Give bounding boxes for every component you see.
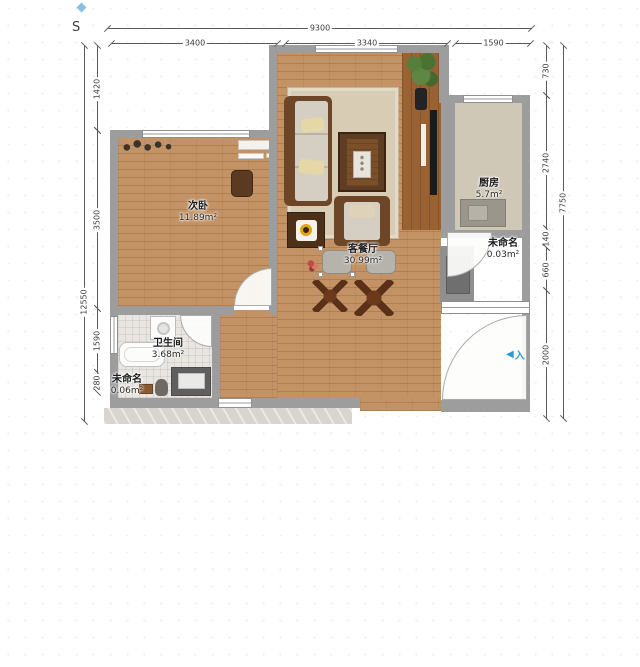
dim-top-seg-2: 3340: [286, 43, 448, 44]
desk-chair[interactable]: [231, 170, 253, 197]
tv-shelf[interactable]: [421, 124, 426, 166]
dim-left-seg-2: 3500: [97, 131, 98, 309]
sofa-cushions: [295, 101, 328, 201]
tv[interactable]: [430, 110, 437, 195]
wall: [441, 400, 530, 412]
floorplan-canvas[interactable]: S: [0, 0, 640, 667]
wall: [441, 103, 455, 238]
side-table[interactable]: [287, 212, 325, 248]
room-name: 未命名: [92, 374, 162, 386]
room-label-living: 客餐厅 30.99m²: [328, 244, 398, 267]
sofa[interactable]: [284, 96, 332, 206]
compass-south-label[interactable]: S: [72, 20, 80, 35]
window-bathroom[interactable]: [110, 316, 118, 354]
wall: [272, 306, 277, 315]
room-area: 0.06m²: [92, 386, 162, 397]
selection-handle[interactable]: [318, 272, 323, 277]
sofa-pillow: [298, 159, 324, 176]
room-name: 客餐厅: [328, 244, 398, 256]
balcony-floor[interactable]: [104, 408, 352, 424]
coffee-table[interactable]: [338, 132, 386, 192]
armchair[interactable]: [334, 196, 390, 246]
room-name: 厨房: [454, 178, 524, 190]
room-area: 5.7m²: [454, 190, 524, 201]
vanity-basin: [178, 373, 205, 389]
room-name: 未命名: [472, 238, 534, 250]
potted-plant[interactable]: [404, 53, 438, 89]
speaker[interactable]: [415, 88, 427, 110]
dim-right-seg-1: 730: [546, 46, 547, 96]
armchair-pillow: [349, 205, 375, 218]
coffee-table-tray: [353, 151, 371, 178]
entrance-arrow-icon: ◀: [506, 349, 514, 360]
room-label-flue: 未命名 0.03m²: [472, 238, 534, 261]
dining-chair-wood[interactable]: [312, 280, 348, 312]
wall: [522, 95, 530, 238]
keyboard[interactable]: [238, 153, 264, 159]
window-balcony[interactable]: [218, 398, 252, 408]
room-area: 11.89m²: [163, 213, 233, 224]
ring-lamp: [300, 224, 312, 236]
window-entry-bay[interactable]: [441, 301, 530, 314]
dim-right-seg-5: 2000: [546, 291, 547, 419]
room-area: 30.99m²: [328, 256, 398, 267]
dim-right-seg-4: 660: [546, 248, 547, 291]
room-label-niche: 未命名 0.06m²: [92, 374, 162, 397]
flower-decoration[interactable]: [307, 259, 318, 272]
dim-left-total: 12550: [84, 46, 85, 422]
dim-top-seg-1: 3400: [112, 43, 278, 44]
compass-needle-icon: [77, 3, 87, 13]
window-bedroom[interactable]: [142, 130, 250, 138]
room-name: 次卧: [163, 201, 233, 213]
selection-handle[interactable]: [318, 246, 323, 251]
wall: [118, 308, 180, 315]
dim-left-seg-3: 1590: [97, 309, 98, 373]
room-label-kitchen: 厨房 5.7m²: [454, 178, 524, 201]
living-floor-lower[interactable]: [360, 398, 441, 411]
dim-top-seg-3: 1590: [456, 43, 531, 44]
entrance-label: 入: [515, 347, 525, 362]
washing-machine[interactable]: [150, 316, 176, 340]
washing-machine-door: [157, 322, 170, 335]
selection-handle[interactable]: [350, 272, 355, 277]
kitchen-sink: [468, 205, 488, 221]
vanity-sink[interactable]: [171, 367, 211, 396]
room-name: 卫生间: [133, 338, 203, 350]
coat-rack[interactable]: [121, 139, 179, 153]
window-kitchen[interactable]: [463, 95, 513, 103]
dim-right-seg-3: 140: [546, 229, 547, 248]
kitchen-counter[interactable]: [460, 199, 506, 227]
wall: [212, 308, 220, 408]
room-area: 3.68m²: [133, 350, 203, 361]
room-label-bedroom: 次卧 11.89m²: [163, 201, 233, 224]
hallway-floor[interactable]: [220, 310, 277, 398]
dim-right-seg-2: 2740: [546, 96, 547, 229]
entrance-marker: ◀ 入: [506, 347, 525, 362]
room-area: 0.03m²: [472, 250, 534, 261]
dim-left-seg-1: 1420: [97, 46, 98, 131]
desk[interactable]: [238, 140, 272, 150]
dining-chair-wood[interactable]: [354, 280, 394, 316]
dim-top-total: 9300: [108, 28, 532, 29]
dim-right-total: 7750: [563, 46, 564, 419]
room-label-bathroom: 卫生间 3.68m²: [133, 338, 203, 361]
wall: [110, 130, 118, 408]
